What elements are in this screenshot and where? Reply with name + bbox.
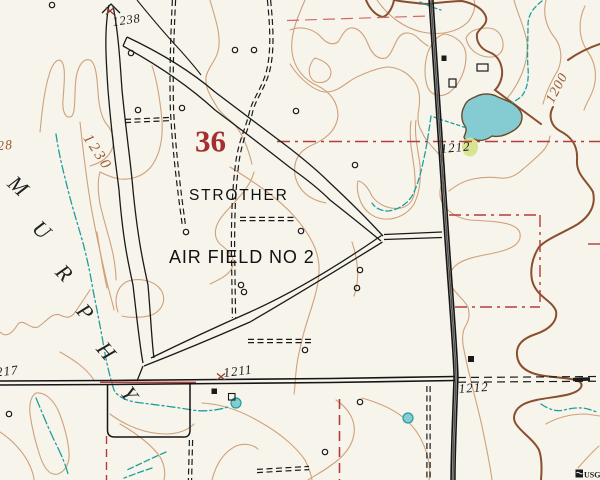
- svg-text:1212: 1212: [440, 138, 471, 156]
- svg-text:STROTHER: STROTHER: [189, 187, 289, 204]
- svg-text:128: 128: [0, 137, 13, 154]
- svg-text:AIR FIELD NO 2: AIR FIELD NO 2: [169, 247, 315, 267]
- svg-text:36: 36: [195, 124, 226, 159]
- svg-text:1212: 1212: [458, 379, 489, 396]
- svg-text:USGS: USGS: [584, 471, 600, 480]
